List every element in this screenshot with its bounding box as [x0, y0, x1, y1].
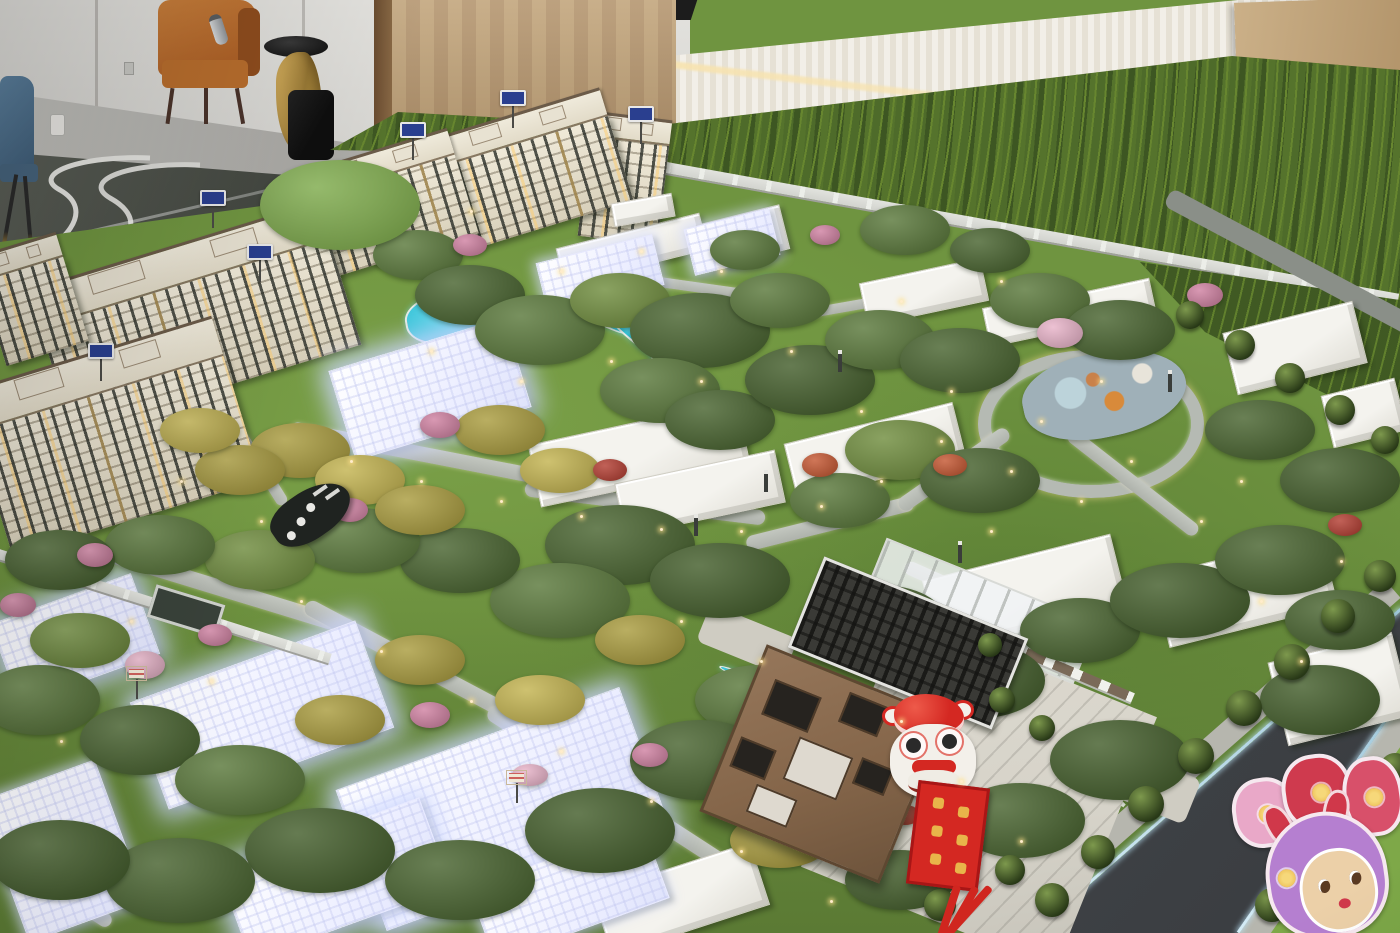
street-tree	[1029, 715, 1055, 741]
path-lamp	[680, 620, 683, 623]
landscape-shrub	[520, 448, 600, 493]
landscape-shrub	[260, 160, 420, 250]
lion-eye	[942, 734, 957, 749]
building-number-plaque	[247, 244, 273, 260]
sign-pole	[212, 204, 214, 228]
landscape-shrub	[1037, 318, 1083, 348]
path-lamp	[900, 720, 903, 723]
chair-seat	[0, 164, 38, 182]
path-lamp	[660, 528, 663, 531]
landscape-shrub	[790, 473, 890, 528]
landscape-shrub	[593, 459, 627, 481]
path-lamp	[560, 270, 563, 273]
path-lamp	[60, 740, 63, 743]
rabbit-nose	[1338, 898, 1351, 910]
chair-leg	[2, 174, 18, 246]
rabbit-eye	[1317, 878, 1331, 894]
skylight-courtyard	[746, 784, 798, 828]
armchair-leg	[166, 88, 175, 124]
chair-back	[0, 76, 34, 174]
path-lamp	[350, 460, 353, 463]
waste-bag	[288, 90, 334, 160]
path-lamp	[260, 520, 263, 523]
path-lamp	[820, 505, 823, 508]
street-tree	[1325, 395, 1355, 425]
path-lamp	[1300, 660, 1303, 663]
skylight	[729, 736, 776, 780]
chair-leg	[23, 176, 33, 248]
landscape-shrub	[1205, 400, 1315, 460]
path-lamp	[520, 380, 523, 383]
path-lamp	[1100, 380, 1103, 383]
path-lamp	[1080, 500, 1083, 503]
landscape-shrub	[105, 515, 215, 575]
path-lamp	[210, 680, 213, 683]
street-tree	[1081, 835, 1115, 869]
landscape-shrub	[385, 840, 535, 920]
gold-character-mark	[932, 797, 944, 809]
gold-character-mark	[956, 834, 968, 846]
landscape-shrub	[1050, 720, 1190, 800]
wall-light-bar	[325, 488, 340, 500]
rooftop-unit	[640, 123, 653, 136]
building-number-plaque	[88, 343, 114, 359]
path-lamp	[130, 620, 133, 623]
small-sign	[126, 666, 147, 681]
landscape-shrub	[1215, 525, 1345, 595]
small-sign	[506, 770, 527, 785]
street-tree	[1035, 883, 1069, 917]
street-tree	[1225, 330, 1255, 360]
path-lamp	[1130, 460, 1133, 463]
landscape-shrub	[175, 745, 305, 815]
wall-light-dot	[285, 529, 298, 542]
landscape-shrub	[420, 412, 460, 438]
landscape-shrub	[245, 808, 395, 893]
street-tree	[1128, 786, 1164, 822]
landscape-shrub	[495, 675, 585, 725]
path-lamp	[470, 210, 473, 213]
landscape-shrub	[1260, 665, 1380, 735]
landscape-shrub	[0, 593, 36, 617]
landscape-shrub	[1328, 514, 1362, 536]
street-tree	[1371, 426, 1399, 454]
street-tree	[1274, 644, 1310, 680]
wayfinding-post	[694, 514, 698, 536]
path-lamp	[860, 410, 863, 413]
path-lamp	[790, 350, 793, 353]
wayfinding-post	[958, 541, 962, 563]
path-lamp	[960, 780, 963, 783]
path-lamp	[700, 380, 703, 383]
landscape-shrub	[933, 454, 967, 476]
landscape-shrub	[650, 543, 790, 618]
showroom-model-photo	[0, 0, 1400, 933]
path-lamp	[1000, 280, 1003, 283]
street-tree	[1364, 560, 1396, 592]
floor-dispenser	[50, 114, 65, 136]
path-lamp	[430, 350, 433, 353]
wayfinding-post	[764, 470, 768, 492]
wayfinding-post	[838, 350, 842, 372]
wall-outlet	[124, 62, 134, 75]
building-number-plaque	[500, 90, 526, 106]
street-tree	[1275, 363, 1305, 393]
path-lamp	[180, 480, 183, 483]
path-lamp	[610, 360, 613, 363]
landscape-shrub	[595, 615, 685, 665]
path-lamp	[1240, 480, 1243, 483]
sign-pole	[136, 679, 138, 699]
skylight	[761, 679, 822, 733]
street-tree	[1226, 690, 1262, 726]
landscape-shrub	[375, 635, 465, 685]
landscape-shrub	[632, 743, 668, 767]
wayfinding-post	[1168, 370, 1172, 392]
wall-light-dot	[295, 515, 308, 528]
landscape-shrub	[160, 408, 240, 453]
landscape-shrub	[295, 695, 385, 745]
blue-chair	[0, 76, 42, 252]
path-lamp	[380, 650, 383, 653]
path-lamp	[470, 700, 473, 703]
path-lamp	[640, 250, 643, 253]
path-lamp	[560, 750, 563, 753]
landscape-shrub	[410, 702, 450, 728]
path-lamp	[990, 530, 993, 533]
street-tree	[1176, 301, 1204, 329]
path-lamp	[1040, 420, 1043, 423]
red-banner	[906, 780, 990, 892]
rabbit-new-year-cutouts	[1220, 742, 1400, 933]
path-lamp	[1340, 560, 1343, 563]
wall-seam	[95, 0, 98, 118]
landscape-shrub	[375, 485, 465, 535]
landscape-shrub	[860, 205, 950, 255]
path-lamp	[830, 900, 833, 903]
wall-light-dot	[304, 501, 317, 514]
sign-pole	[100, 357, 102, 381]
street-tree	[978, 633, 1002, 657]
gold-character-mark	[931, 825, 943, 837]
rabbit-eye	[1348, 870, 1362, 886]
gold-flower	[1364, 787, 1384, 807]
sign-pole	[259, 258, 261, 282]
landscape-shrub	[730, 273, 830, 328]
landscape-shrub	[198, 624, 232, 646]
path-lamp	[1260, 600, 1263, 603]
landscape-shrub	[900, 328, 1020, 393]
sign-pole	[512, 104, 514, 128]
landscape-shrub	[710, 230, 780, 270]
path-lamp	[760, 660, 763, 663]
path-lamp	[940, 440, 943, 443]
landscape-shrub	[1280, 448, 1400, 513]
path-lamp	[650, 800, 653, 803]
street-tree	[1321, 599, 1355, 633]
armchair-leg	[235, 88, 245, 124]
building-number-plaque	[628, 106, 654, 122]
path-lamp	[300, 600, 303, 603]
armchair-seat	[162, 60, 248, 88]
path-lamp	[950, 390, 953, 393]
path-lamp	[880, 480, 883, 483]
path-lamp	[500, 500, 503, 503]
gold-flower	[1277, 868, 1297, 888]
leather-armchair	[150, 0, 270, 126]
gold-character-mark	[955, 862, 967, 874]
path-lamp	[740, 850, 743, 853]
sign-pole	[516, 783, 518, 803]
skylight-courtyard	[782, 736, 853, 800]
sign-pole	[412, 136, 414, 160]
lion-dance-decoration	[876, 688, 1008, 928]
path-lamp	[580, 515, 583, 518]
sign-pole	[640, 120, 642, 144]
rabbit-face	[1294, 843, 1383, 933]
building-number-plaque	[200, 190, 226, 206]
gold-character-mark	[929, 853, 941, 865]
landscape-shrub	[802, 453, 838, 477]
building-number-plaque	[400, 122, 426, 138]
path-lamp	[1010, 470, 1013, 473]
landscape-shrub	[195, 445, 285, 495]
gold-side-table	[262, 36, 342, 170]
landscape-shrub	[950, 228, 1030, 273]
path-lamp	[1200, 520, 1203, 523]
path-lamp	[420, 480, 423, 483]
path-lamp	[720, 270, 723, 273]
landscape-shrub	[77, 543, 113, 567]
gold-character-mark	[957, 806, 969, 818]
street-tree	[1178, 738, 1214, 774]
lion-eye	[906, 738, 921, 753]
path-lamp	[740, 530, 743, 533]
landscape-shrub	[453, 234, 487, 256]
path-lamp	[1020, 840, 1023, 843]
path-lamp	[900, 300, 903, 303]
landscape-shrub	[810, 225, 840, 245]
landscape-shrub	[30, 613, 130, 668]
landscape-shrub	[455, 405, 545, 455]
armchair-leg	[204, 88, 208, 124]
